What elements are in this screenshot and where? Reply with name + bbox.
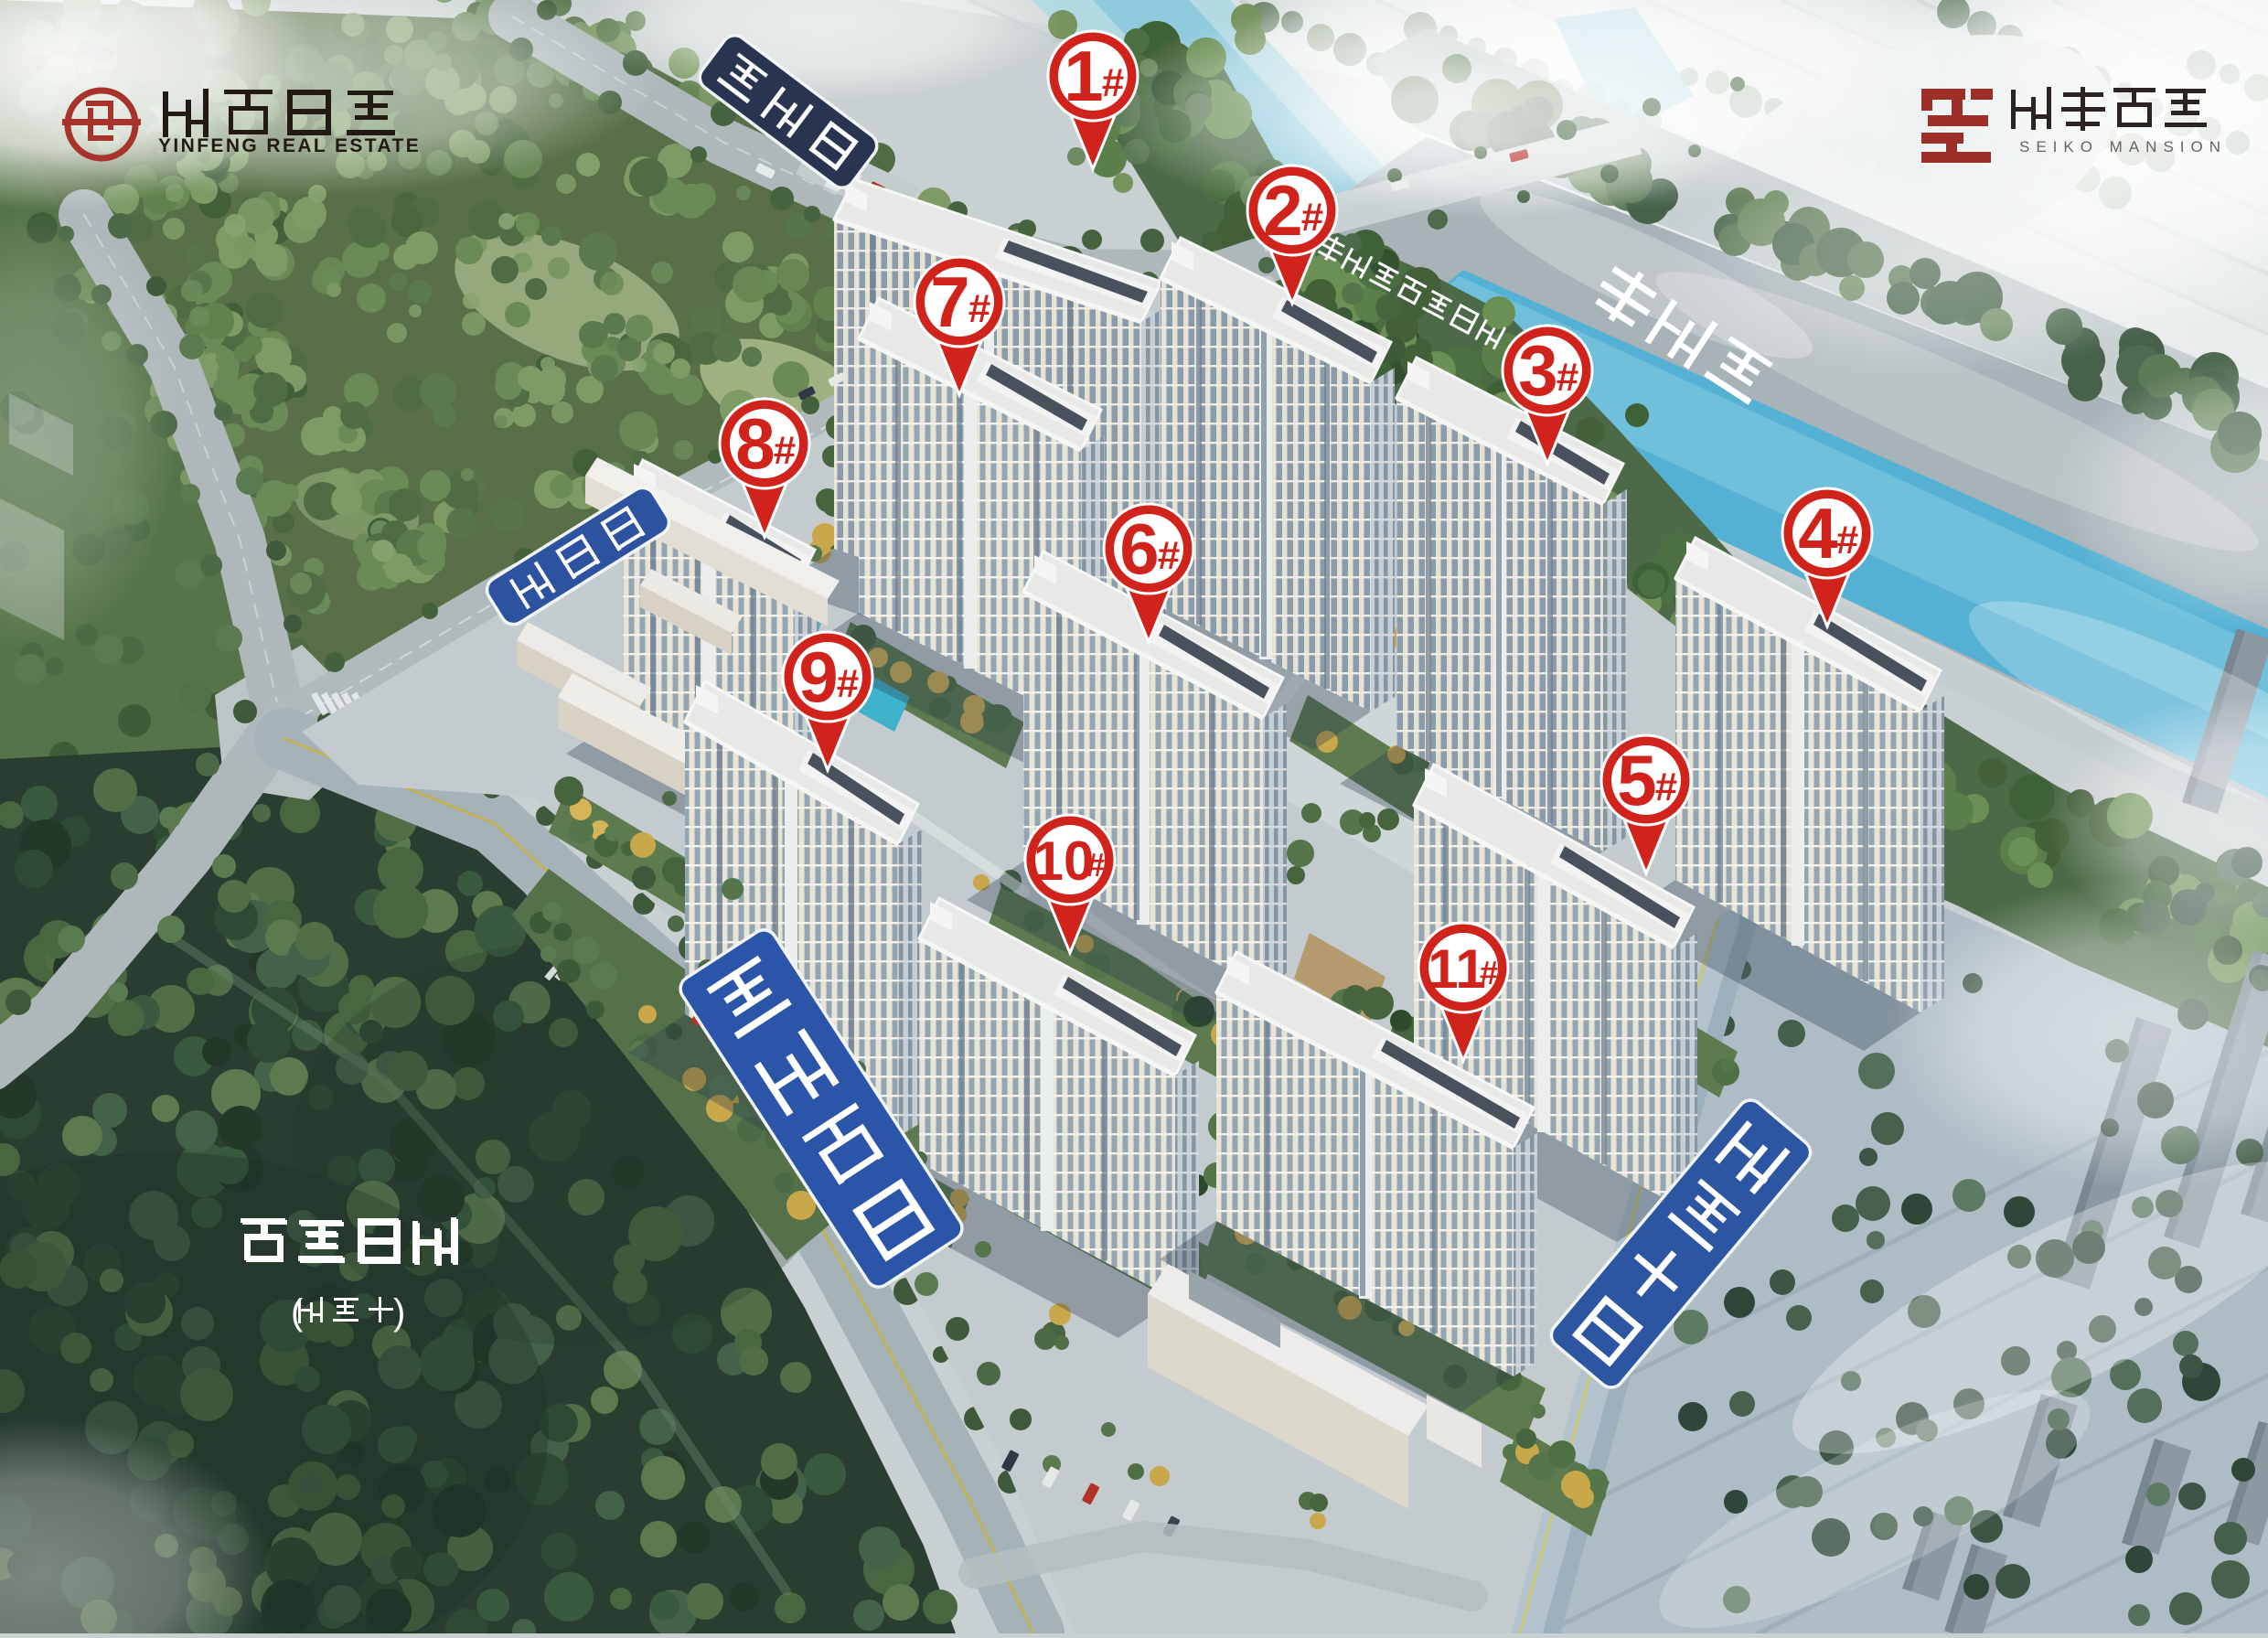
svg-text:1: 1 (1064, 36, 1103, 116)
svg-text:7: 7 (930, 262, 969, 342)
svg-text:#: # (1086, 846, 1105, 883)
svg-text:): ) (393, 1292, 405, 1333)
svg-text:#: # (1655, 765, 1677, 809)
svg-text:5: 5 (1617, 740, 1656, 820)
svg-text:11: 11 (1428, 938, 1485, 1000)
svg-text:(: ( (291, 1292, 304, 1333)
svg-text:3: 3 (1518, 330, 1557, 411)
svg-text:#: # (1301, 195, 1323, 240)
svg-text:#: # (774, 428, 796, 473)
svg-text:4: 4 (1798, 493, 1837, 573)
svg-text:10: 10 (1033, 830, 1095, 892)
svg-text:8: 8 (735, 403, 775, 484)
svg-text:#: # (1836, 518, 1858, 562)
svg-text:SEIKO MANSION: SEIKO MANSION (2019, 138, 2227, 155)
svg-text:#: # (837, 661, 859, 706)
svg-text:#: # (1557, 355, 1578, 400)
svg-text:#: # (1102, 60, 1124, 105)
svg-text:#: # (1158, 533, 1180, 578)
svg-text:#: # (1480, 954, 1498, 991)
svg-text:YINFENG REAL ESTATE: YINFENG REAL ESTATE (158, 135, 421, 156)
svg-text:9: 9 (798, 637, 838, 717)
svg-text:2: 2 (1263, 170, 1302, 251)
svg-text:#: # (968, 286, 990, 331)
svg-text:6: 6 (1119, 509, 1159, 589)
